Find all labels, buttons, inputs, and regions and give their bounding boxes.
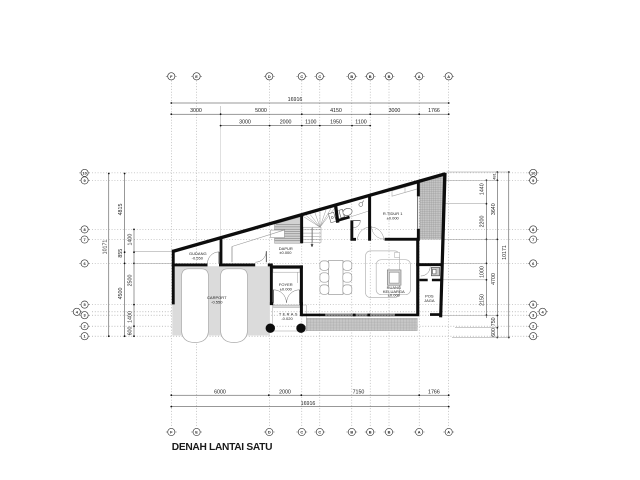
svg-text:2000: 2000 <box>279 389 291 395</box>
svg-text:750: 750 <box>491 317 497 326</box>
svg-text:2500: 2500 <box>127 275 133 287</box>
svg-text:10171: 10171 <box>102 240 108 255</box>
svg-text:B: B <box>369 74 372 79</box>
svg-text:E: E <box>195 74 198 79</box>
svg-text:2150: 2150 <box>479 294 485 306</box>
svg-text:16916: 16916 <box>301 401 316 407</box>
svg-text:3000: 3000 <box>239 120 251 126</box>
svg-text:4150: 4150 <box>330 108 342 114</box>
svg-text:600: 600 <box>491 328 497 337</box>
svg-text:1766: 1766 <box>428 108 440 114</box>
svg-text:C: C <box>318 430 321 435</box>
svg-text:DENAH LANTAI SATU: DENAH LANTAI SATU <box>172 442 272 453</box>
svg-text:C: C <box>318 74 321 79</box>
svg-text:A: A <box>447 74 450 79</box>
svg-text:10: 10 <box>82 170 86 175</box>
svg-text:1400: 1400 <box>127 311 133 323</box>
svg-text:5000: 5000 <box>255 108 267 114</box>
svg-text:1440: 1440 <box>480 183 486 195</box>
svg-text:B: B <box>388 74 391 79</box>
svg-text:1766: 1766 <box>428 389 440 395</box>
svg-text:1100: 1100 <box>355 120 366 126</box>
svg-text:B: B <box>350 74 353 79</box>
svg-text:-0.550: -0.550 <box>192 256 204 261</box>
svg-text:7: 7 <box>532 237 534 242</box>
svg-text:4500: 4500 <box>118 288 124 300</box>
svg-text:JAGA: JAGA <box>424 298 435 303</box>
svg-text:1100: 1100 <box>305 120 316 126</box>
svg-text:3000: 3000 <box>190 108 202 114</box>
svg-text:A: A <box>418 430 421 435</box>
svg-text:±0.000: ±0.000 <box>388 293 401 298</box>
svg-text:D: D <box>268 430 271 435</box>
svg-text:1400: 1400 <box>127 234 133 246</box>
svg-text:10: 10 <box>531 170 535 175</box>
svg-text:-0.550: -0.550 <box>211 299 223 304</box>
svg-text:A: A <box>418 74 421 79</box>
svg-text:D: D <box>268 74 271 79</box>
svg-text:1950: 1950 <box>330 120 342 126</box>
svg-text:±0.000: ±0.000 <box>279 250 292 255</box>
svg-text:6000: 6000 <box>214 389 226 395</box>
svg-text:B: B <box>369 430 372 435</box>
svg-text:855: 855 <box>118 249 124 258</box>
svg-text:7150: 7150 <box>353 389 365 395</box>
svg-text:-0.020: -0.020 <box>281 316 293 321</box>
svg-text:1000: 1000 <box>479 266 485 278</box>
svg-text:10171: 10171 <box>502 245 508 260</box>
svg-text:2000: 2000 <box>280 120 292 126</box>
svg-text:4815: 4815 <box>118 204 124 216</box>
svg-text:481: 481 <box>491 172 496 179</box>
svg-text:7: 7 <box>84 237 86 242</box>
svg-text:2200: 2200 <box>480 216 486 228</box>
svg-text:C: C <box>300 74 303 79</box>
svg-text:±0.000: ±0.000 <box>387 216 400 221</box>
svg-text:4700: 4700 <box>491 273 497 285</box>
svg-text:E: E <box>195 430 198 435</box>
svg-text:B: B <box>350 430 353 435</box>
svg-text:600: 600 <box>127 327 133 336</box>
svg-text:A: A <box>447 430 450 435</box>
svg-text:3000: 3000 <box>389 108 401 114</box>
svg-text:3640: 3640 <box>491 203 497 215</box>
svg-text:B: B <box>388 430 391 435</box>
svg-text:C: C <box>300 430 303 435</box>
svg-text:±0.000: ±0.000 <box>280 286 293 291</box>
svg-text:16916: 16916 <box>288 97 303 103</box>
